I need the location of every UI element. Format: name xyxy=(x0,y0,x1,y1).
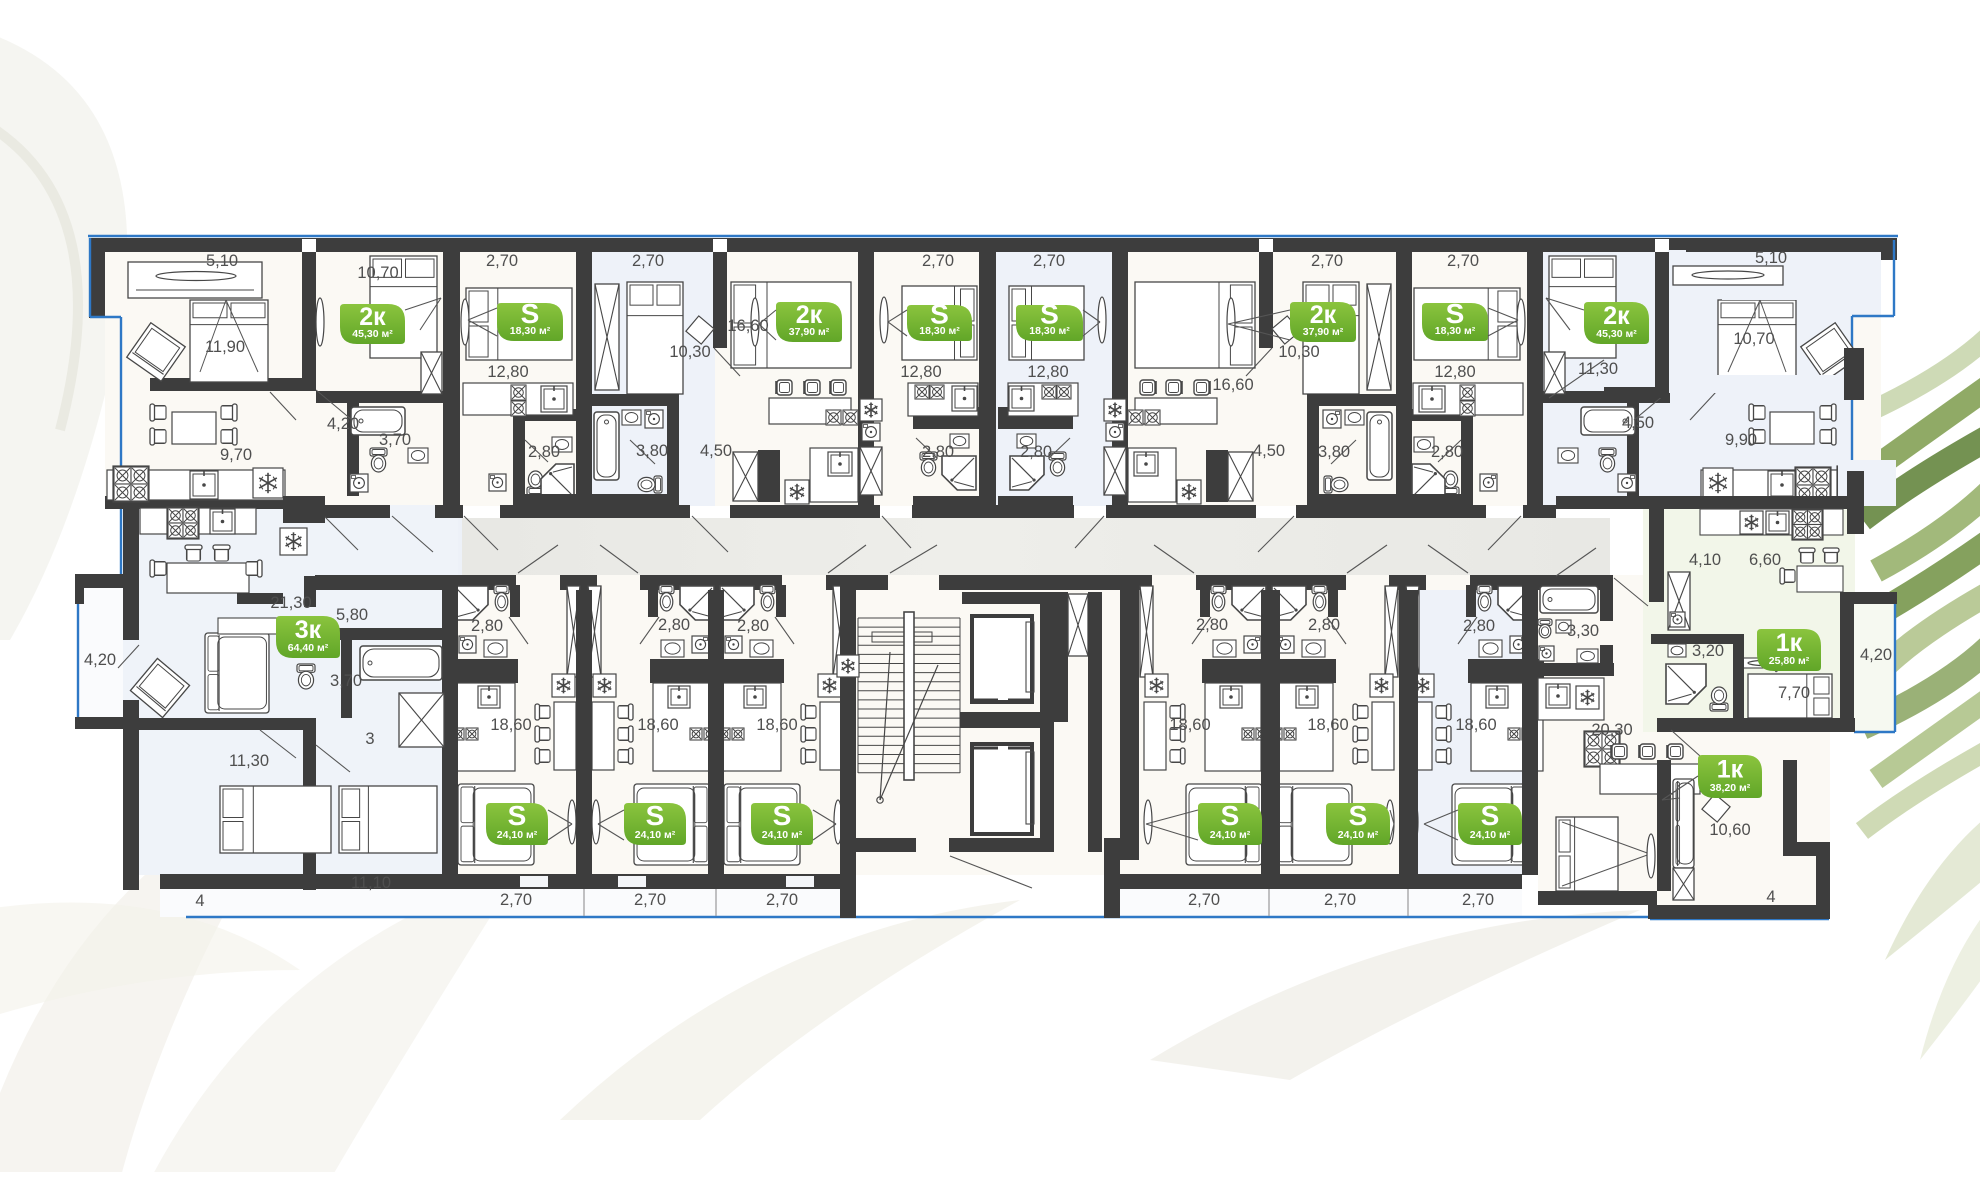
svg-text:2,70: 2,70 xyxy=(1324,891,1356,909)
svg-text:10,30: 10,30 xyxy=(669,343,710,361)
svg-text:4,10: 4,10 xyxy=(1689,551,1721,569)
svg-text:2,70: 2,70 xyxy=(1462,891,1494,909)
svg-text:2,70: 2,70 xyxy=(486,252,518,270)
svg-text:2к: 2к xyxy=(796,301,823,329)
svg-text:45,30 м²: 45,30 м² xyxy=(1596,328,1637,340)
svg-text:3: 3 xyxy=(365,730,374,748)
svg-text:2,80: 2,80 xyxy=(737,617,769,635)
svg-text:2,70: 2,70 xyxy=(922,252,954,270)
svg-text:11,30: 11,30 xyxy=(1578,360,1618,378)
svg-text:3,80: 3,80 xyxy=(1318,443,1350,461)
svg-text:2,70: 2,70 xyxy=(1188,891,1220,909)
svg-text:2,80: 2,80 xyxy=(1308,616,1340,634)
svg-text:3,80: 3,80 xyxy=(636,442,668,460)
svg-text:3,20: 3,20 xyxy=(1692,642,1724,660)
svg-text:2,80: 2,80 xyxy=(658,616,690,634)
svg-text:4,20: 4,20 xyxy=(84,651,116,669)
svg-text:11,10: 11,10 xyxy=(351,874,391,892)
svg-text:2,80: 2,80 xyxy=(471,617,503,635)
svg-text:45,30 м²: 45,30 м² xyxy=(352,328,393,340)
svg-text:37,90 м²: 37,90 м² xyxy=(1303,326,1344,338)
svg-text:2,70: 2,70 xyxy=(766,891,798,909)
svg-text:25,80 м²: 25,80 м² xyxy=(1769,655,1810,667)
svg-text:2,70: 2,70 xyxy=(1033,252,1065,270)
svg-text:5,10: 5,10 xyxy=(206,252,238,270)
svg-text:24,10 м²: 24,10 м² xyxy=(1470,829,1511,841)
svg-text:24,10 м²: 24,10 м² xyxy=(635,829,676,841)
svg-text:2к: 2к xyxy=(1310,301,1337,329)
svg-text:2,80: 2,80 xyxy=(1463,617,1495,635)
svg-text:1к: 1к xyxy=(1776,629,1803,657)
svg-text:2,70: 2,70 xyxy=(500,891,532,909)
svg-text:S: S xyxy=(508,800,527,831)
svg-text:4,50: 4,50 xyxy=(1253,442,1285,460)
svg-text:5,80: 5,80 xyxy=(336,606,368,624)
svg-text:2к: 2к xyxy=(1603,302,1630,330)
svg-text:2,80: 2,80 xyxy=(1020,443,1052,461)
svg-text:2,70: 2,70 xyxy=(1311,252,1343,270)
svg-text:18,30 м²: 18,30 м² xyxy=(1029,325,1070,337)
svg-text:24,10 м²: 24,10 м² xyxy=(497,829,538,841)
svg-text:10,70: 10,70 xyxy=(1733,330,1774,348)
svg-text:12,80: 12,80 xyxy=(1434,363,1475,381)
svg-text:10,60: 10,60 xyxy=(1709,821,1750,839)
svg-text:2,80: 2,80 xyxy=(1196,616,1228,634)
svg-text:2,70: 2,70 xyxy=(634,891,666,909)
svg-text:18,30 м²: 18,30 м² xyxy=(1435,325,1476,337)
svg-text:12,80: 12,80 xyxy=(1027,363,1068,381)
svg-text:4,20: 4,20 xyxy=(1860,646,1892,664)
svg-text:2,70: 2,70 xyxy=(1447,252,1479,270)
svg-text:6,60: 6,60 xyxy=(1749,551,1781,569)
svg-text:24,10 м²: 24,10 м² xyxy=(1210,829,1251,841)
svg-text:18,60: 18,60 xyxy=(1307,716,1348,734)
svg-text:18,60: 18,60 xyxy=(756,716,797,734)
svg-text:21,30: 21,30 xyxy=(270,594,311,612)
svg-text:12,80: 12,80 xyxy=(900,363,941,381)
svg-text:1к: 1к xyxy=(1717,755,1744,783)
svg-text:3,70: 3,70 xyxy=(379,431,411,449)
svg-text:18,30 м²: 18,30 м² xyxy=(510,325,551,337)
svg-text:64,40 м²: 64,40 м² xyxy=(288,642,329,654)
svg-text:11,90: 11,90 xyxy=(205,338,245,356)
svg-text:S: S xyxy=(646,800,665,831)
svg-text:S: S xyxy=(773,800,792,831)
svg-text:4,50: 4,50 xyxy=(1622,414,1654,432)
svg-text:11,30: 11,30 xyxy=(229,752,269,770)
svg-text:16,60: 16,60 xyxy=(727,317,768,335)
svg-text:20,30: 20,30 xyxy=(1591,721,1632,739)
svg-text:S: S xyxy=(1221,800,1240,831)
svg-text:4,50: 4,50 xyxy=(700,442,732,460)
svg-text:18,60: 18,60 xyxy=(637,716,678,734)
svg-text:9,70: 9,70 xyxy=(220,446,252,464)
svg-text:10,30: 10,30 xyxy=(1278,343,1319,361)
svg-text:S: S xyxy=(1481,800,1500,831)
svg-text:12,80: 12,80 xyxy=(487,363,528,381)
svg-text:4,20: 4,20 xyxy=(327,415,359,433)
svg-text:3,30: 3,30 xyxy=(1567,622,1599,640)
svg-text:18,60: 18,60 xyxy=(490,716,531,734)
svg-text:2,80: 2,80 xyxy=(528,443,560,461)
svg-text:4: 4 xyxy=(195,892,204,910)
svg-text:3к: 3к xyxy=(295,616,322,644)
svg-text:16,60: 16,60 xyxy=(1212,376,1253,394)
svg-text:37,90 м²: 37,90 м² xyxy=(789,326,830,338)
svg-text:18,60: 18,60 xyxy=(1455,716,1496,734)
svg-text:7,70: 7,70 xyxy=(1778,684,1810,702)
svg-text:18,30 м²: 18,30 м² xyxy=(919,325,960,337)
svg-text:38,20 м²: 38,20 м² xyxy=(1710,782,1751,794)
svg-text:18,60: 18,60 xyxy=(1169,716,1210,734)
svg-text:2,80: 2,80 xyxy=(1431,443,1463,461)
svg-text:S: S xyxy=(1349,800,1368,831)
svg-text:4: 4 xyxy=(1766,888,1775,906)
svg-text:24,10 м²: 24,10 м² xyxy=(762,829,803,841)
svg-text:2,70: 2,70 xyxy=(632,252,664,270)
svg-text:9,90: 9,90 xyxy=(1725,431,1757,449)
svg-text:5,10: 5,10 xyxy=(1755,249,1787,267)
svg-text:3,70: 3,70 xyxy=(330,672,362,690)
svg-text:2,80: 2,80 xyxy=(922,443,954,461)
svg-text:24,10 м²: 24,10 м² xyxy=(1338,829,1379,841)
svg-text:10,70: 10,70 xyxy=(357,264,398,282)
svg-text:2к: 2к xyxy=(359,303,386,331)
